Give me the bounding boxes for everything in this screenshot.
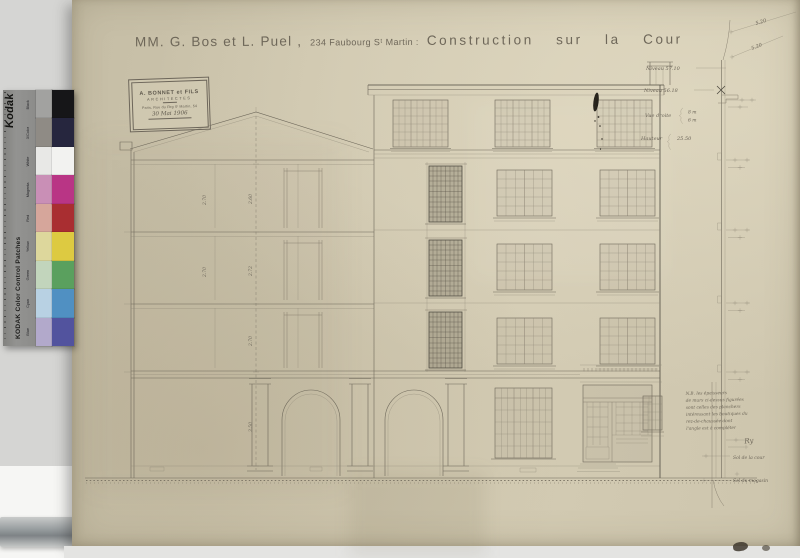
section-dim: 3.50 <box>248 422 254 432</box>
color-patch <box>36 289 52 317</box>
patch-name: Yellow <box>26 232 36 260</box>
patch-name: 3/Color <box>26 119 36 147</box>
stamp-date: 30 Mai 1906 <box>148 110 192 120</box>
note-line: l'angle est à compléter <box>686 425 780 434</box>
color-patch <box>36 318 52 346</box>
color-patch <box>52 175 74 203</box>
color-patch <box>52 147 74 175</box>
patch-name: Red <box>26 204 36 232</box>
color-patch <box>52 90 74 118</box>
diagonal-dim: 5.20 <box>755 18 768 27</box>
color-patch <box>36 90 52 118</box>
section-dim: 2.72 <box>248 266 254 277</box>
kodak-light-patches <box>36 90 52 346</box>
color-patch <box>52 289 74 317</box>
section-dim: 2.60 <box>248 194 254 205</box>
level-annotation: Niveau 56.18 <box>643 88 678 94</box>
ground-line <box>85 478 757 483</box>
kodak-brand: Kodak <box>4 92 16 128</box>
kodak-rotated-text: Kodak KODAK Color Control Patches Blue C… <box>3 90 36 346</box>
kodak-label-strip: Kodak KODAK Color Control Patches Blue C… <box>3 90 36 346</box>
patch-name: Black <box>26 90 36 118</box>
architectural-drawing: 2.60 2.72 2.70 3.50 2.70 2.70 <box>0 0 800 558</box>
vue-droite-label: Vue droite <box>645 113 671 119</box>
vue-droite-value: 8 m <box>688 110 697 116</box>
height-value: 25.50 <box>676 136 692 142</box>
color-patch <box>36 147 52 175</box>
patch-name: Cyan <box>26 289 36 317</box>
section-dim: 2.70 <box>248 336 254 347</box>
patch-name: Green <box>26 261 36 289</box>
sol-magasin-label: Sol du magasin <box>733 478 768 484</box>
drawing-title: MM. G. Bos et L. Puel , 234 Faubourg Sᵗ … <box>135 32 675 50</box>
color-patch <box>36 175 52 203</box>
stamp-role: ARCHITECTES <box>147 96 192 102</box>
color-patch <box>52 232 74 260</box>
color-patch <box>36 118 52 146</box>
section-dim: 2.70 <box>202 195 208 206</box>
nb-handwritten-note: N.B. les épaisseurs de murs ci-dessus fi… <box>686 390 781 447</box>
patch-name: Magenta <box>26 176 36 204</box>
kodak-patch-names: Blue Cyan Green Yellow Red Magenta White… <box>26 90 36 346</box>
patch-name: Blue <box>26 318 36 346</box>
kodak-strip-title: KODAK Color Control Patches <box>15 237 22 339</box>
architect-stamp: A. BONNET et FILS ARCHITECTES Paris, Rue… <box>128 77 211 133</box>
color-patch <box>52 118 74 146</box>
color-patch <box>36 261 52 289</box>
building-section: 2.60 2.72 2.70 3.50 2.70 2.70 <box>120 107 660 478</box>
color-patch <box>36 204 52 232</box>
stamp-address: Paris, Rue du Fbg Sᵗ Martin, 54 <box>142 104 197 110</box>
kodak-color-control-strip: Kodak KODAK Color Control Patches Blue C… <box>3 90 74 346</box>
level-annotation: Niveau 57.10 <box>645 66 681 72</box>
sol-cour-label: Sol de la cour <box>733 455 765 461</box>
courtyard-facade <box>368 62 673 478</box>
stamp-border: A. BONNET et FILS ARCHITECTES Paris, Rue… <box>131 79 209 130</box>
vue-droite-value: 6 m <box>688 118 697 124</box>
title-address: 234 Faubourg Sᵗ Martin : <box>302 37 427 48</box>
kodak-full-patches <box>52 90 74 346</box>
section-dim: 2.70 <box>202 267 208 278</box>
paper-stain <box>762 545 770 551</box>
stamp-rule <box>162 102 176 103</box>
color-patch <box>36 232 52 260</box>
diagonal-dim: 5.20 <box>751 42 764 52</box>
color-patch <box>52 261 74 289</box>
stair-windows <box>425 162 467 372</box>
title-subject: Construction sur la Cour <box>427 32 683 48</box>
color-patch <box>52 204 74 232</box>
title-owners: MM. G. Bos et L. Puel , <box>135 34 302 50</box>
height-label: Hauteur <box>640 136 663 142</box>
color-patch <box>52 318 74 346</box>
patch-name: White <box>26 147 36 175</box>
